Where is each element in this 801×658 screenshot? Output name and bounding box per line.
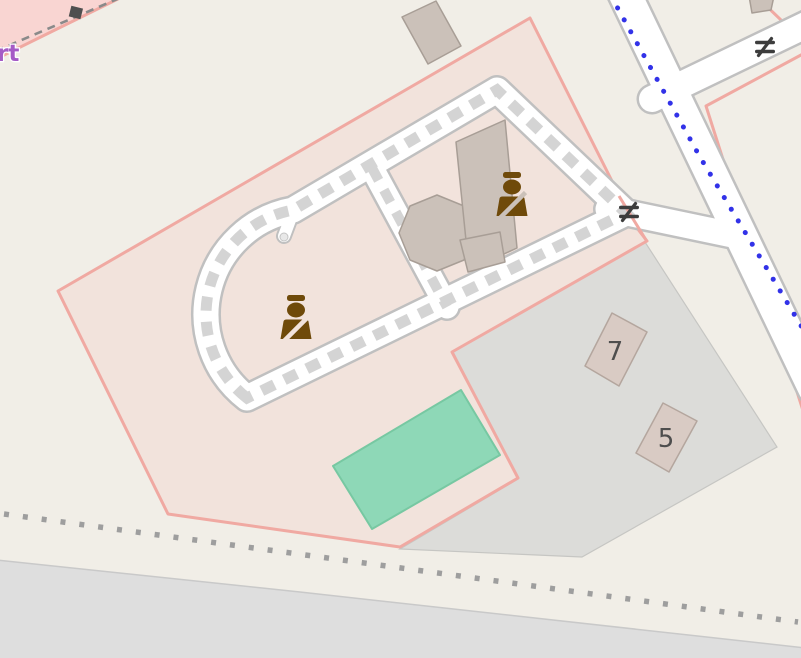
street-label-fragment: rt xyxy=(0,41,19,67)
gate-bar-top xyxy=(619,206,639,209)
stub-end-dot xyxy=(280,233,288,241)
gate-bar-top xyxy=(755,41,775,44)
house-number-7: 7 xyxy=(607,337,624,367)
bust-head xyxy=(287,303,305,318)
map-canvas[interactable]: 7 5 rt xyxy=(0,0,801,658)
gate-bar-bottom xyxy=(755,50,775,53)
bust-beret xyxy=(287,295,305,301)
bust-beret xyxy=(503,172,521,178)
gate-bar-bottom xyxy=(619,215,639,218)
house-number-5: 5 xyxy=(658,424,675,454)
bust-head xyxy=(503,180,521,195)
